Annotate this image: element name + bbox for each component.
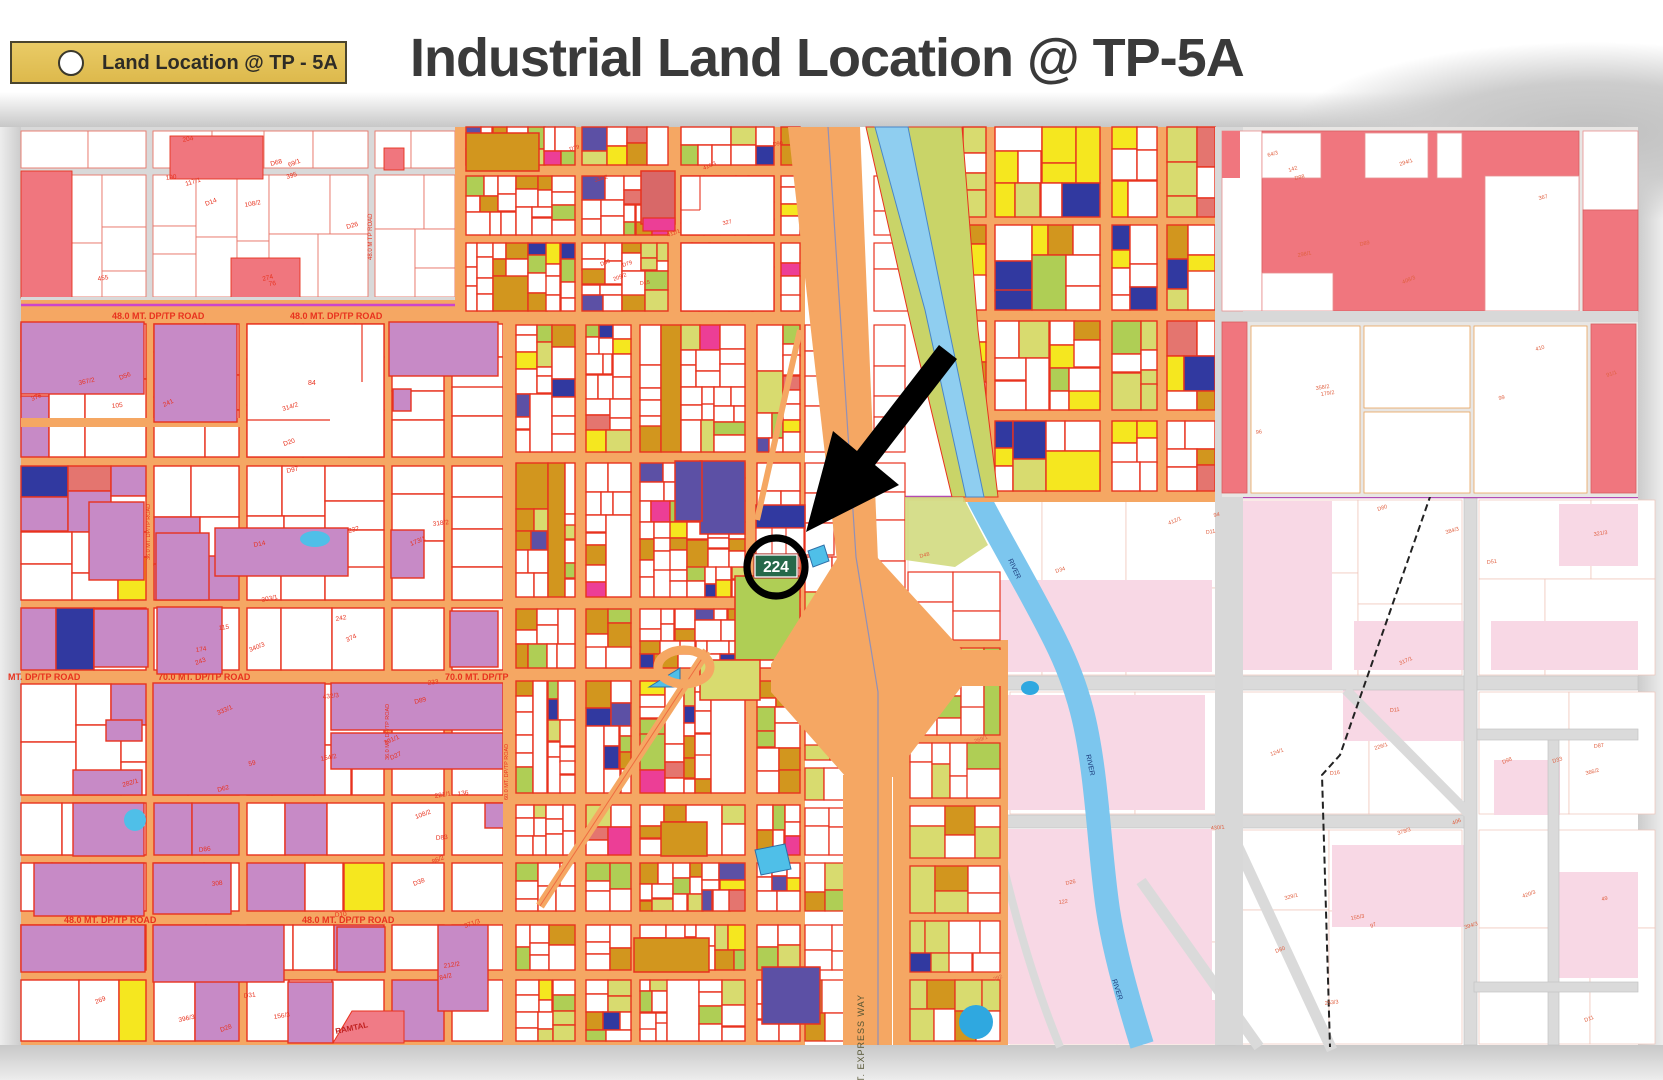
svg-text:T. EXPRESS WAY: T. EXPRESS WAY [856, 994, 866, 1080]
svg-text:48.0 MT. DP/TP ROAD: 48.0 MT. DP/TP ROAD [64, 915, 157, 925]
svg-text:122: 122 [1058, 899, 1068, 906]
svg-text:D15: D15 [640, 280, 651, 287]
svg-text:D51: D51 [1487, 559, 1498, 566]
svg-text:36.0 MT. DP/TP ROAD: 36.0 MT. DP/TP ROAD [385, 704, 391, 760]
svg-text:D11: D11 [1390, 707, 1400, 714]
svg-text:48.0 MT. DP/TP ROAD: 48.0 MT. DP/TP ROAD [112, 311, 205, 321]
svg-text:D83: D83 [436, 834, 449, 842]
svg-text:MT. DP/TP ROAD: MT. DP/TP ROAD [8, 672, 81, 682]
svg-text:94: 94 [1213, 512, 1220, 519]
svg-text:48.0 MT. DP/TP ROAD: 48.0 MT. DP/TP ROAD [290, 311, 383, 321]
svg-text:224: 224 [763, 559, 789, 576]
svg-text:D86: D86 [198, 846, 211, 854]
svg-text:115: 115 [218, 624, 230, 632]
svg-text:70.0 MT. DP/TP ROAD: 70.0 MT. DP/TP ROAD [158, 672, 251, 682]
svg-text:D10: D10 [335, 911, 348, 919]
svg-text:48.0 M TP ROAD: 48.0 M TP ROAD [368, 213, 374, 260]
svg-text:D87: D87 [1594, 743, 1605, 750]
svg-text:99: 99 [1498, 395, 1505, 402]
svg-text:36.0 MT. DP/TP ROAD: 36.0 MT. DP/TP ROAD [146, 504, 152, 560]
svg-text:84: 84 [308, 380, 316, 387]
svg-text:48.0 MT. DP/TP ROAD: 48.0 MT. DP/TP ROAD [302, 915, 395, 925]
svg-text:60.0 MT. DP/TP ROAD: 60.0 MT. DP/TP ROAD [504, 744, 510, 800]
svg-text:96: 96 [1256, 429, 1263, 436]
svg-text:70.0 MT. DP/TP: 70.0 MT. DP/TP [445, 672, 509, 682]
svg-text:105: 105 [111, 402, 123, 410]
svg-text:D31: D31 [243, 992, 256, 1000]
svg-text:308: 308 [211, 880, 223, 888]
svg-text:D16: D16 [1330, 770, 1341, 777]
